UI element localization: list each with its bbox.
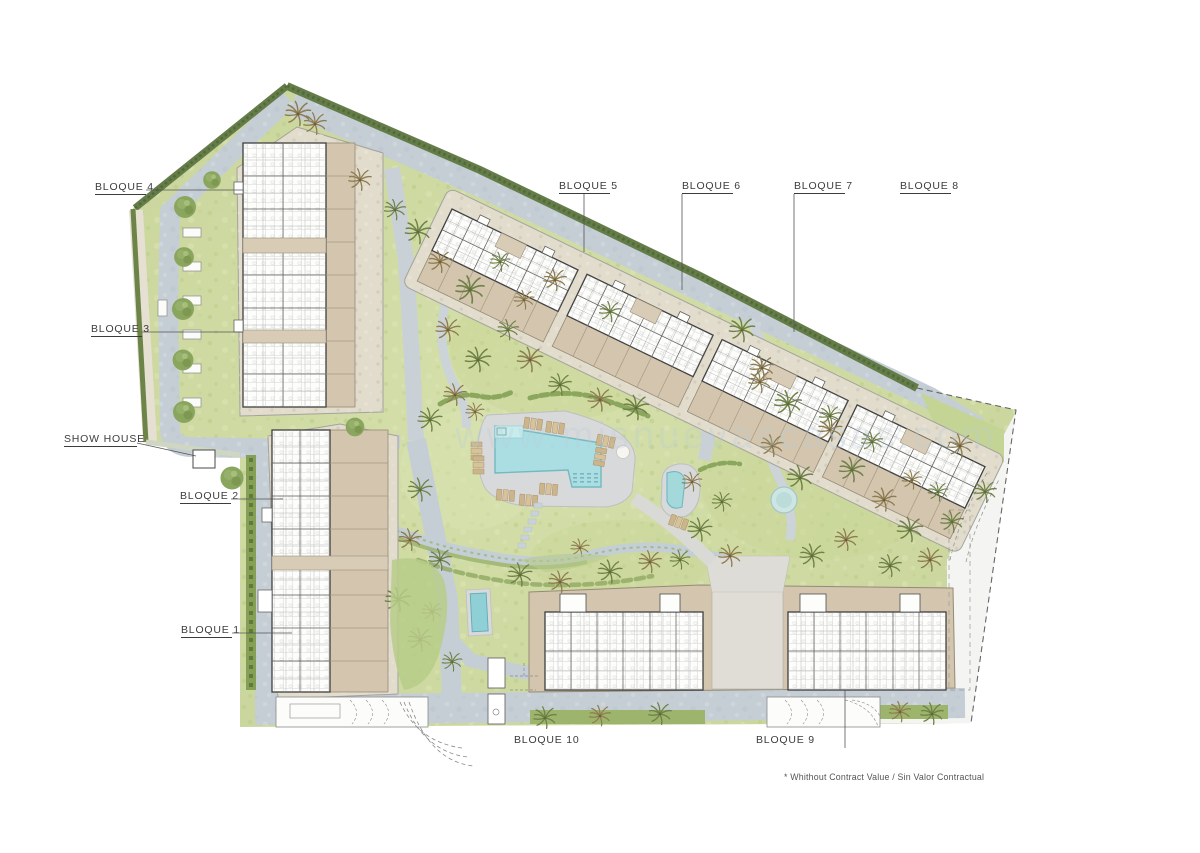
svg-text:BLOQUE 7: BLOQUE 7 [794,180,853,192]
svg-text:* Whithout Contract Value / Si: * Whithout Contract Value / Sin Valor Co… [784,772,984,782]
svg-text:BLOQUE 10: BLOQUE 10 [514,734,580,746]
svg-text:BLOQUE 1: BLOQUE 1 [181,624,240,636]
svg-text:BLOQUE 5: BLOQUE 5 [559,180,618,192]
svg-text:www.misnuevascasas.com: www.misnuevascasas.com [454,415,997,457]
svg-text:BLOQUE 8: BLOQUE 8 [900,180,959,192]
svg-text:BLOQUE 6: BLOQUE 6 [682,180,741,192]
svg-text:BLOQUE 2: BLOQUE 2 [180,490,239,502]
svg-text:BLOQUE 3: BLOQUE 3 [91,323,150,335]
svg-text:BLOQUE 9: BLOQUE 9 [756,734,815,746]
svg-text:SHOW HOUSE: SHOW HOUSE [64,433,145,445]
svg-text:BLOQUE 4: BLOQUE 4 [95,181,154,193]
